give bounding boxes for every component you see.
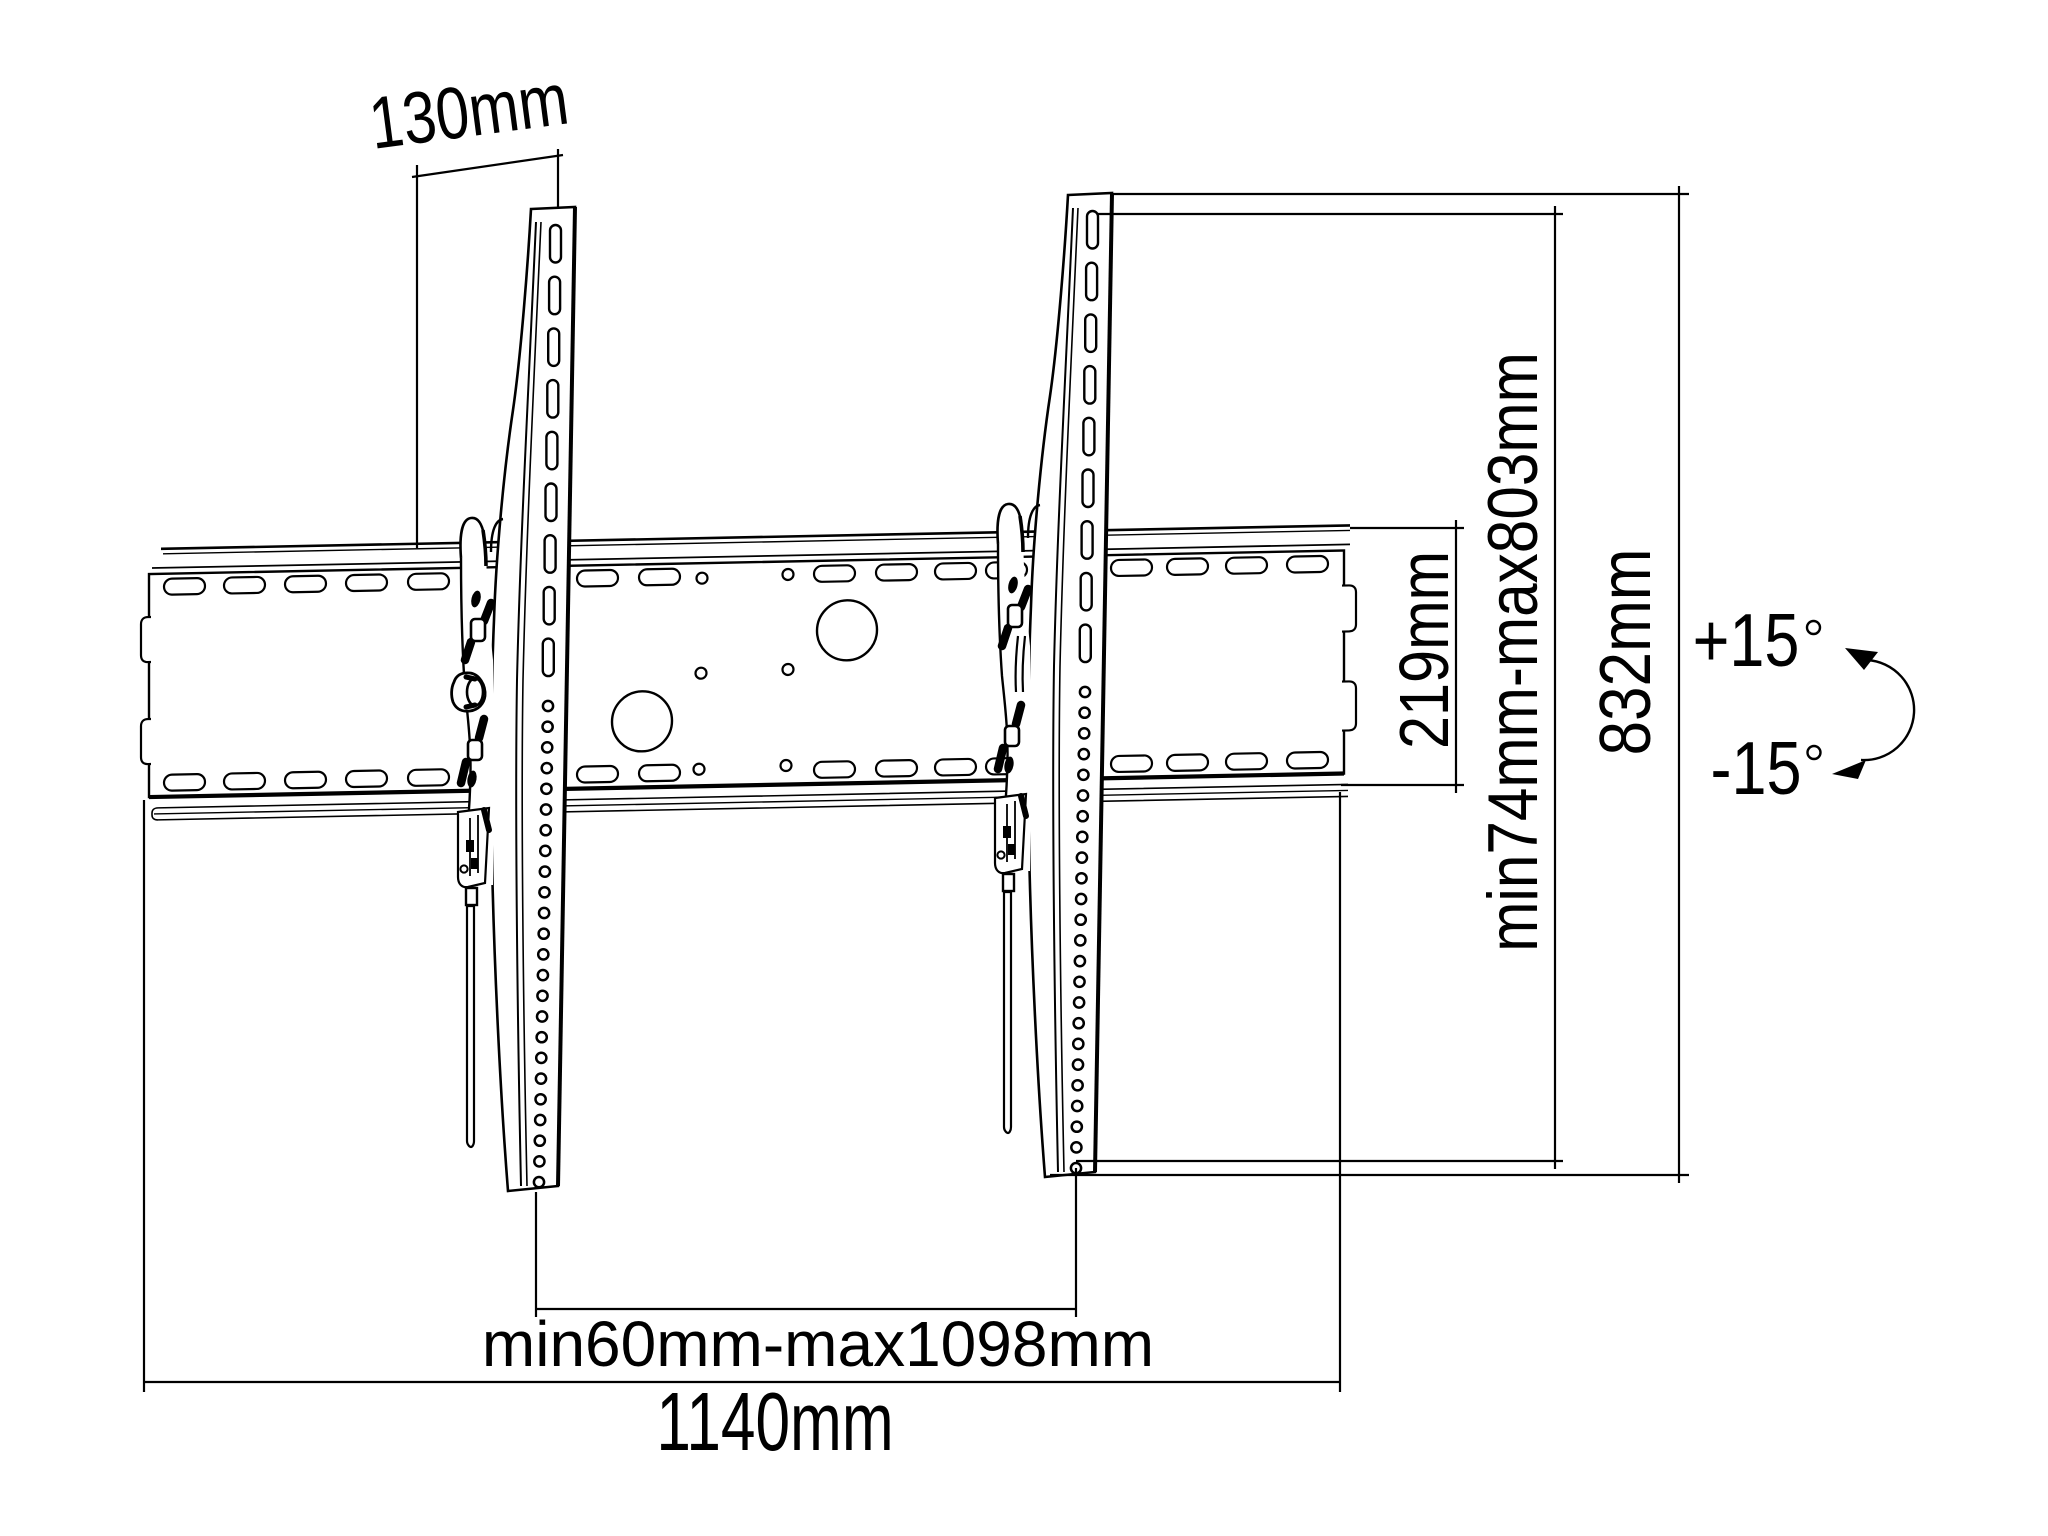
svg-text:min60mm-max1098mm: min60mm-max1098mm: [482, 1308, 1154, 1380]
svg-text:219mm: 219mm: [1386, 551, 1463, 749]
svg-text:min74mm-max803mm: min74mm-max803mm: [1474, 352, 1552, 952]
svg-text:+15: +15: [1693, 598, 1800, 682]
svg-text:1140mm: 1140mm: [656, 1375, 893, 1468]
svg-text:832mm: 832mm: [1586, 548, 1667, 755]
svg-text:-15: -15: [1710, 726, 1801, 810]
